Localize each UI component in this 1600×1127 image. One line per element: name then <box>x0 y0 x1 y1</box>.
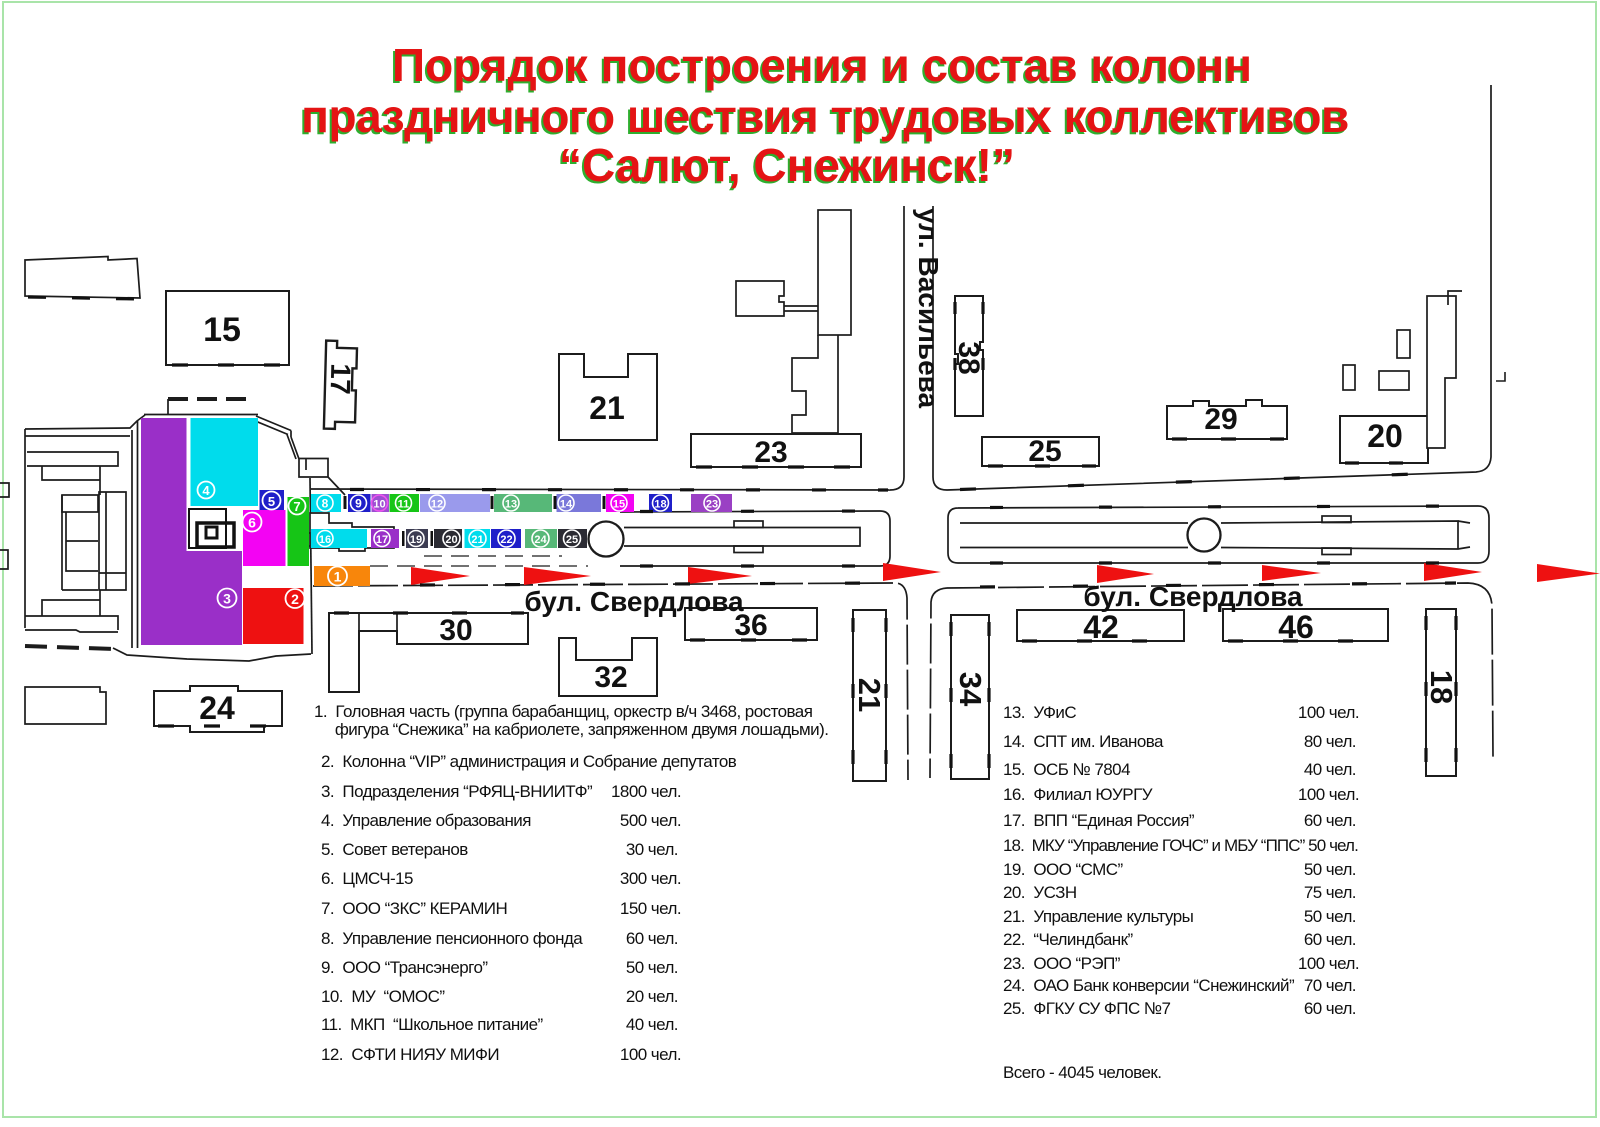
svg-text:42: 42 <box>1083 609 1119 645</box>
svg-text:22: 22 <box>500 534 512 546</box>
svg-text:13: 13 <box>505 499 517 511</box>
svg-text:24: 24 <box>534 534 547 546</box>
svg-text:46: 46 <box>1278 609 1314 645</box>
svg-text:21: 21 <box>471 534 483 546</box>
svg-text:25: 25 <box>1028 435 1061 468</box>
svg-text:19: 19 <box>410 534 422 546</box>
svg-text:11: 11 <box>398 499 410 511</box>
svg-text:17: 17 <box>325 363 357 395</box>
svg-text:36: 36 <box>734 609 767 642</box>
svg-text:5: 5 <box>268 494 275 509</box>
svg-text:23: 23 <box>754 436 787 469</box>
svg-text:4: 4 <box>202 483 210 498</box>
svg-text:12: 12 <box>431 499 443 511</box>
svg-text:9: 9 <box>355 497 362 511</box>
svg-text:21: 21 <box>589 390 625 426</box>
svg-text:15: 15 <box>203 311 241 349</box>
svg-text:17: 17 <box>376 534 388 546</box>
svg-text:8: 8 <box>322 497 329 511</box>
svg-text:18: 18 <box>654 499 666 511</box>
svg-text:14: 14 <box>560 499 573 511</box>
svg-text:20: 20 <box>1367 418 1403 454</box>
svg-text:32: 32 <box>594 661 627 694</box>
svg-text:20: 20 <box>445 534 457 546</box>
svg-text:38: 38 <box>952 341 985 374</box>
svg-text:ул. Васильева: ул. Васильева <box>913 208 944 409</box>
svg-text:25: 25 <box>566 534 578 546</box>
svg-text:21: 21 <box>852 678 887 712</box>
svg-text:16: 16 <box>319 534 331 546</box>
svg-text:23: 23 <box>706 499 718 511</box>
svg-text:34: 34 <box>953 672 988 707</box>
svg-text:бул. Свердлова: бул. Свердлова <box>1083 581 1303 612</box>
svg-text:30: 30 <box>439 614 472 647</box>
svg-text:10: 10 <box>373 499 385 511</box>
svg-text:3: 3 <box>223 591 231 607</box>
svg-text:1: 1 <box>334 569 342 585</box>
svg-text:2: 2 <box>291 591 299 607</box>
svg-text:бул. Свердлова: бул. Свердлова <box>524 586 744 617</box>
svg-text:15: 15 <box>613 499 625 511</box>
svg-text:7: 7 <box>293 499 300 514</box>
svg-text:24: 24 <box>199 690 235 726</box>
svg-text:29: 29 <box>1204 403 1237 436</box>
svg-text:18: 18 <box>1424 670 1459 704</box>
svg-text:6: 6 <box>248 515 256 531</box>
